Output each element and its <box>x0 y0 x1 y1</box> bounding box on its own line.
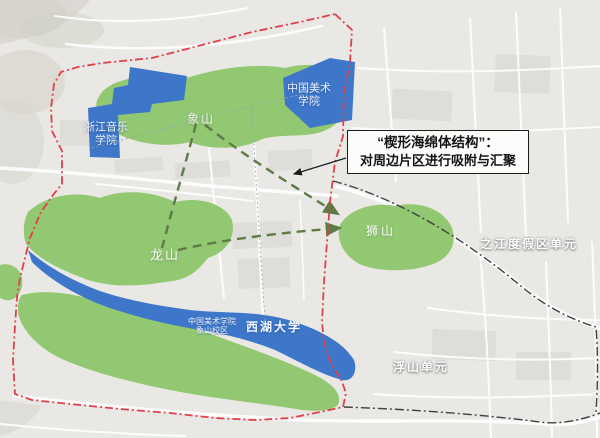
label-line: 中国美术学院 <box>188 317 236 326</box>
map-canvas <box>0 0 600 438</box>
label-line: 浙江音乐 <box>84 121 128 134</box>
callout-title: “楔形海绵体结构”： <box>350 134 526 152</box>
label-westlake-university: 西湖大学 <box>246 321 302 335</box>
label-line: 中国美术 <box>287 82 331 95</box>
label-zhijiang-resort-unit: 之江度假区单元 <box>480 238 578 252</box>
callout-box: “楔形海绵体结构”： 对周边片区进行吸附与汇聚 <box>347 130 529 174</box>
figure-root: 浙江音乐 学院 中国美术 学院 象山 龙山 狮山 中国美术学院 象山校区 西湖大… <box>0 0 600 438</box>
label-line: 象山校区 <box>188 326 236 335</box>
label-line: 学院 <box>84 134 128 147</box>
label-shishan-hill: 狮山 <box>366 225 396 239</box>
label-zhejiang-conservatory: 浙江音乐 学院 <box>84 121 128 146</box>
label-line: 学院 <box>287 95 331 108</box>
callout-body: 对周边片区进行吸附与汇聚 <box>350 152 526 169</box>
label-caa-xiangshan-campus: 中国美术学院 象山校区 <box>188 317 236 335</box>
label-xiangshan-hill: 象山 <box>187 113 215 127</box>
shishan-hill-shape <box>339 204 454 270</box>
label-china-academy-of-art: 中国美术 学院 <box>287 82 331 107</box>
label-fushan-unit: 浮山单元 <box>393 361 449 375</box>
label-longshan-hill: 龙山 <box>150 249 180 264</box>
